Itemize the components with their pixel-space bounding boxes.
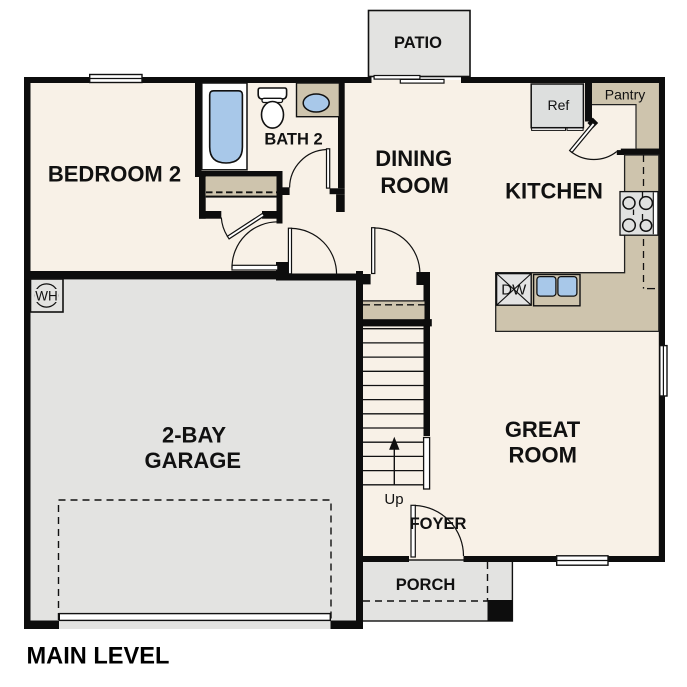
svg-text:Pantry: Pantry — [605, 87, 645, 103]
svg-text:WH: WH — [35, 289, 58, 304]
svg-text:BEDROOM 2: BEDROOM 2 — [48, 162, 181, 187]
svg-text:DINING: DINING — [375, 146, 452, 171]
svg-text:ROOM: ROOM — [380, 173, 448, 198]
svg-text:BATH 2: BATH 2 — [264, 131, 322, 149]
svg-text:Ref: Ref — [548, 97, 570, 113]
svg-text:MAIN LEVEL: MAIN LEVEL — [27, 644, 170, 670]
svg-text:GREAT: GREAT — [505, 417, 581, 442]
svg-text:KITCHEN: KITCHEN — [505, 179, 603, 204]
svg-text:2-BAY: 2-BAY — [162, 423, 226, 448]
svg-text:PATIO: PATIO — [394, 34, 442, 52]
svg-text:DW: DW — [501, 282, 527, 299]
svg-text:PORCH: PORCH — [396, 576, 456, 594]
svg-text:GARAGE: GARAGE — [145, 448, 242, 473]
svg-text:FOYER: FOYER — [410, 515, 467, 533]
svg-text:Up: Up — [384, 491, 403, 508]
svg-text:ROOM: ROOM — [508, 443, 576, 468]
